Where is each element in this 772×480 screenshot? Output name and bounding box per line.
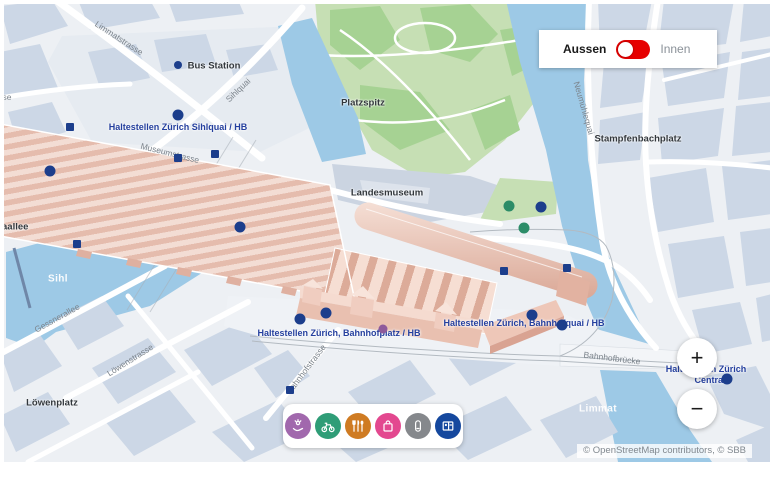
stop-square-marker[interactable]: [500, 267, 508, 275]
map-attribution: © OpenStreetMap contributors, © SBB: [577, 444, 752, 458]
category-lockers-button[interactable]: [405, 413, 431, 439]
aussen-innen-toggle[interactable]: [616, 40, 650, 59]
ticket-counter-icon: [440, 418, 456, 434]
place-label-landesmuseum: Landesmuseum: [351, 188, 423, 199]
toggle-label-innen: Innen: [660, 42, 690, 56]
stop-circle-marker[interactable]: [536, 202, 547, 213]
zoom-out-button[interactable]: −: [677, 389, 717, 429]
stop-circle-marker[interactable]: [722, 374, 733, 385]
plus-icon: +: [691, 347, 704, 369]
zoom-in-button[interactable]: +: [677, 338, 717, 378]
stop-square-marker[interactable]: [211, 150, 219, 158]
category-gastronomy-button[interactable]: [345, 413, 371, 439]
poi-green-marker[interactable]: [504, 201, 515, 212]
street-label-bahnhofbrücke: Bahnhofbrücke: [583, 350, 641, 367]
category-bike-button[interactable]: [315, 413, 341, 439]
cutlery-icon: [350, 418, 366, 434]
bike-icon: [320, 418, 336, 434]
street-label-bahnhofstrasse: Bahnhofstrasse: [284, 342, 328, 395]
view-toggle-card: Aussen Innen: [539, 30, 717, 68]
stop-circle-small-marker[interactable]: [174, 61, 182, 69]
water-label-sihl: Sihl: [48, 274, 68, 285]
stop-circle-marker[interactable]: [321, 308, 332, 319]
street-label-gessnerallee: Gessnerallee: [33, 301, 82, 334]
stop-square-marker[interactable]: [66, 123, 74, 131]
category-shopping-button[interactable]: [375, 413, 401, 439]
place-label-bus-station: Bus Station: [188, 61, 241, 72]
toggle-knob: [618, 42, 633, 57]
transit-label-haltestellen-zürich-bahnhofplatz-hb: Haltestellen Zürich, Bahnhofplatz / HB: [257, 328, 420, 338]
stop-square-marker[interactable]: [286, 386, 294, 394]
stop-circle-marker[interactable]: [557, 320, 568, 331]
place-label-stampfenbachplatz: Stampfenbachplatz: [594, 134, 681, 145]
stop-circle-marker[interactable]: [173, 110, 184, 121]
place-label-löwenplatz: Löwenplatz: [26, 398, 78, 409]
locker-icon: [410, 418, 426, 434]
poi-purple-marker[interactable]: [379, 325, 388, 334]
services-hand-icon: [290, 418, 306, 434]
street-label-limmatstrasse: Limmatstrasse: [93, 19, 145, 57]
category-ticket-counter-button[interactable]: [435, 413, 461, 439]
poi-green-marker[interactable]: [519, 223, 530, 234]
frame-bottom: [0, 462, 772, 480]
street-label-neumühlequai: Neumühlequai: [572, 80, 597, 135]
water-label-limmat: Limmat: [579, 404, 617, 415]
toggle-label-aussen: Aussen: [563, 42, 606, 56]
station-map-app: LimmatstrasseSihlquaiMuseumstrasseNeumüh…: [0, 0, 772, 480]
category-services-button[interactable]: [285, 413, 311, 439]
street-label-löwenstrasse: Löwenstrasse: [105, 342, 155, 378]
street-label-sihlquai: Sihlquai: [224, 76, 253, 104]
place-label-platzspitz: Platzspitz: [341, 98, 385, 109]
transit-label-haltestellen-zürich-sihlquai-hb: Haltestellen Zürich Sihlquai / HB: [109, 122, 248, 132]
stop-square-marker[interactable]: [563, 264, 571, 272]
frame-top: [0, 0, 772, 4]
stop-circle-marker[interactable]: [295, 314, 306, 325]
map-canvas[interactable]: LimmatstrasseSihlquaiMuseumstrasseNeumüh…: [0, 0, 772, 480]
category-icon-bar: [283, 404, 463, 448]
shopping-bag-icon: [380, 418, 396, 434]
minus-icon: −: [691, 398, 704, 420]
frame-left: [0, 0, 4, 480]
stop-circle-marker[interactable]: [527, 310, 538, 321]
